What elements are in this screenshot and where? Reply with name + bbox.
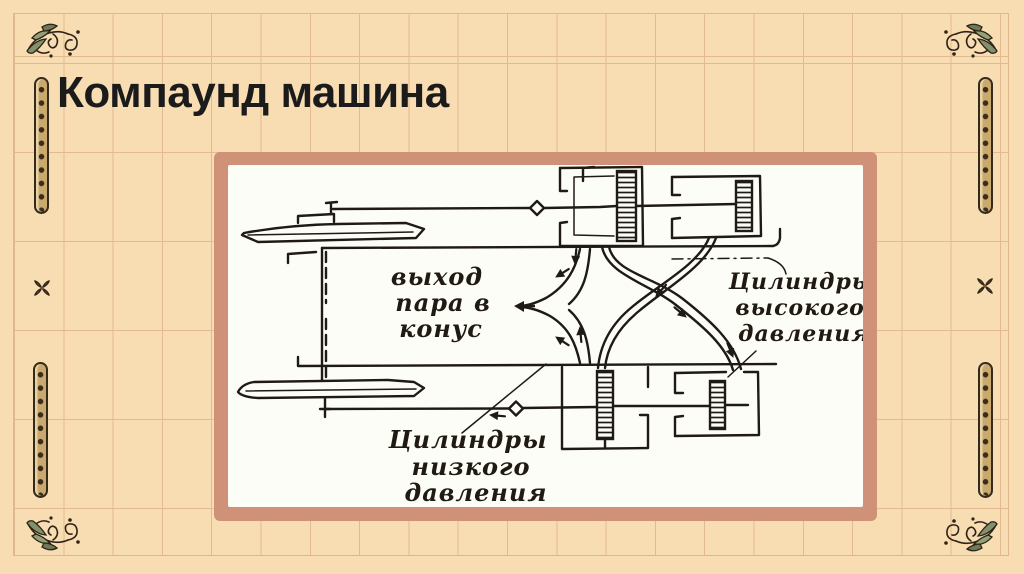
hp-label-line2: высокого <box>735 295 863 321</box>
corner-flourish-icon <box>943 516 1001 554</box>
piston-hatch <box>710 381 725 429</box>
low-pressure-label: Цилиндры низкого давления <box>387 425 547 507</box>
corner-flourish-icon <box>23 21 81 59</box>
slide-title: Компаунд машина <box>57 70 449 116</box>
lp-label-line1: Цилиндры <box>387 425 547 454</box>
bottom-piston-rod <box>325 405 748 409</box>
exhaust-label-line2: пара в <box>395 288 490 317</box>
lp-label-line3: давления <box>405 478 548 507</box>
steam-engine-diagram: выход пара в конус Цилиндры высокого дав… <box>228 165 863 507</box>
hp-label-line3: давления <box>738 321 863 347</box>
exhaust-label-line1: выход <box>391 262 483 291</box>
flower-icon <box>974 275 996 297</box>
piston-hatch <box>617 171 636 241</box>
high-pressure-label: Цилиндры высокого давления <box>728 269 863 347</box>
slide-background: Компаунд машина <box>0 0 1024 574</box>
lp-label-line2: низкого <box>411 452 530 481</box>
corner-flourish-icon <box>943 21 1001 59</box>
decorative-strip <box>978 362 993 498</box>
diamond-joint <box>530 201 544 215</box>
deck-lines <box>288 229 780 380</box>
decorative-strip <box>33 362 48 498</box>
figure-paper: выход пара в конус Цилиндры высокого дав… <box>228 165 863 507</box>
bottom-crosshead-assembly <box>238 380 424 417</box>
hp-label-line1: Цилиндры <box>728 269 863 295</box>
diamond-joint <box>509 402 523 416</box>
decorative-strip <box>34 77 49 214</box>
piston-hatch <box>736 181 752 231</box>
figure-frame: выход пара в конус Цилиндры высокого дав… <box>214 152 877 521</box>
exhaust-label: выход пара в конус <box>391 262 491 343</box>
decorative-strip <box>978 77 993 214</box>
corner-flourish-icon <box>23 515 81 553</box>
piston-hatch <box>597 371 613 439</box>
exhaust-label-line3: конус <box>399 314 483 343</box>
flower-icon <box>31 277 53 299</box>
